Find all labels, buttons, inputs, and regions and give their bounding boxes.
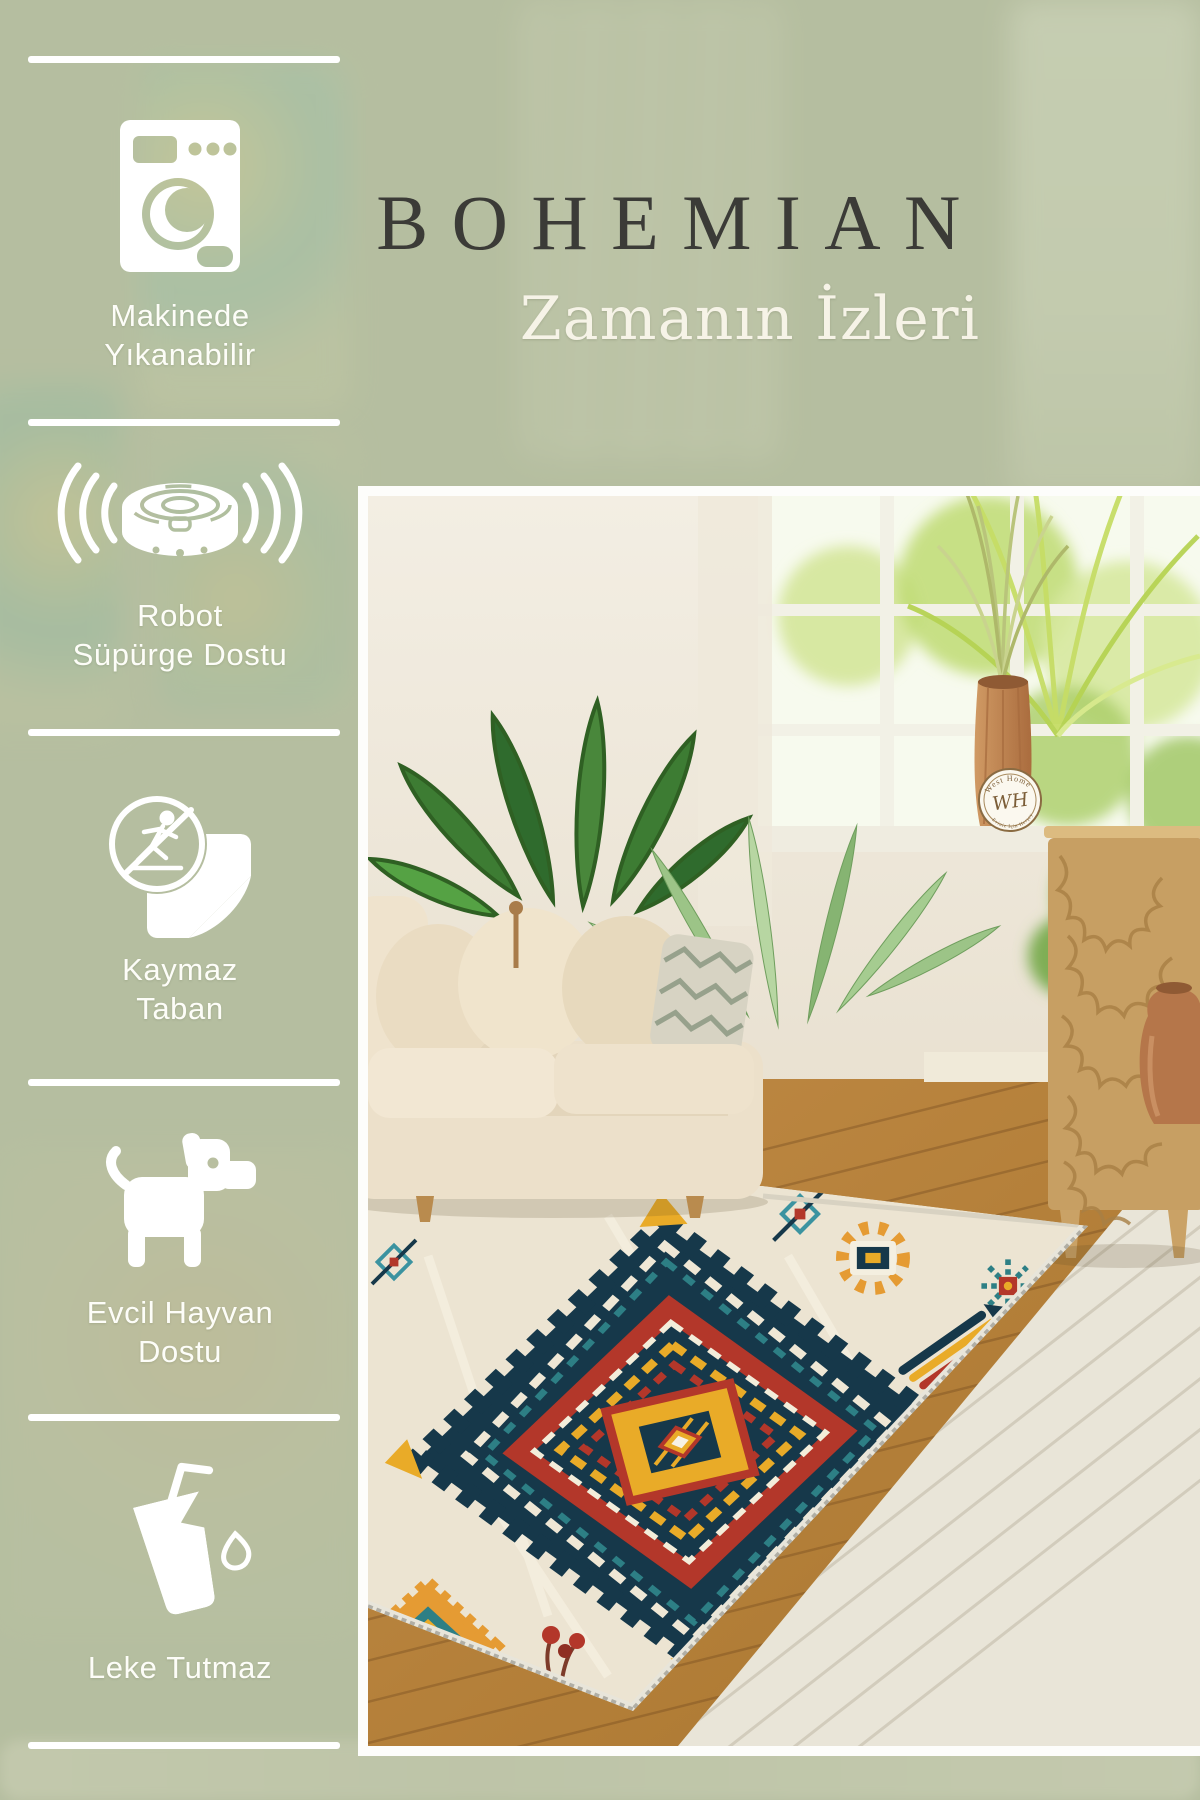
sofa bbox=[368, 896, 768, 1222]
feature-label-line: Yıkanabilir bbox=[17, 335, 343, 374]
divider bbox=[28, 1742, 340, 1749]
feature-label-line: Kaymaz bbox=[17, 950, 343, 989]
window bbox=[750, 496, 1200, 856]
feature-label: Kaymaz Taban bbox=[17, 950, 343, 1028]
non-slip-base-icon bbox=[95, 772, 265, 944]
feature-label: Evcil Hayvan Dostu bbox=[17, 1293, 343, 1371]
feature-robot-vacuum bbox=[17, 452, 343, 584]
feature-label: Leke Tutmaz bbox=[17, 1648, 343, 1687]
feature-machine-washable bbox=[17, 118, 343, 280]
divider bbox=[28, 1079, 340, 1086]
divider bbox=[28, 1414, 340, 1421]
feature-label-line: Dostu bbox=[17, 1332, 343, 1371]
feature-sidebar: Makinede Yıkanabilir bbox=[0, 0, 360, 1800]
feature-label-line: Robot bbox=[17, 596, 343, 635]
patterned-pillow bbox=[648, 932, 756, 1062]
divider bbox=[28, 729, 340, 736]
product-banner: BOHEMIAN Zamanın İzleri bbox=[0, 0, 1200, 1800]
feature-label-line: Makinede bbox=[17, 296, 343, 335]
page-subtitle: Zamanın İzleri bbox=[400, 284, 1100, 354]
product-photo: West Home WH Eviniz İçin Herşey bbox=[368, 496, 1200, 1746]
product-photo-frame: West Home WH Eviniz İçin Herşey bbox=[358, 486, 1200, 1756]
dog-icon bbox=[92, 1115, 268, 1279]
feature-label-line: Süpürge Dostu bbox=[17, 635, 343, 674]
spill-glass-icon bbox=[90, 1452, 270, 1638]
feature-pet-friendly bbox=[17, 1115, 343, 1279]
feature-label-line: Taban bbox=[17, 989, 343, 1028]
feature-label: Robot Süpürge Dostu bbox=[17, 596, 343, 674]
feature-label-line: Evcil Hayvan bbox=[17, 1293, 343, 1332]
washing-machine-icon bbox=[105, 118, 255, 280]
feature-label: Makinede Yıkanabilir bbox=[17, 296, 343, 374]
living-room-scene: West Home WH Eviniz İçin Herşey bbox=[368, 496, 1200, 1746]
divider bbox=[28, 56, 340, 63]
feature-label-line: Leke Tutmaz bbox=[17, 1648, 343, 1687]
robot-vacuum-icon bbox=[30, 452, 330, 584]
terracotta-jug bbox=[1140, 982, 1200, 1124]
page-title: BOHEMIAN bbox=[330, 178, 1030, 268]
baseboard bbox=[924, 1052, 1060, 1082]
feature-stain-resistant bbox=[17, 1452, 343, 1638]
feature-non-slip bbox=[17, 772, 343, 944]
divider bbox=[28, 419, 340, 426]
